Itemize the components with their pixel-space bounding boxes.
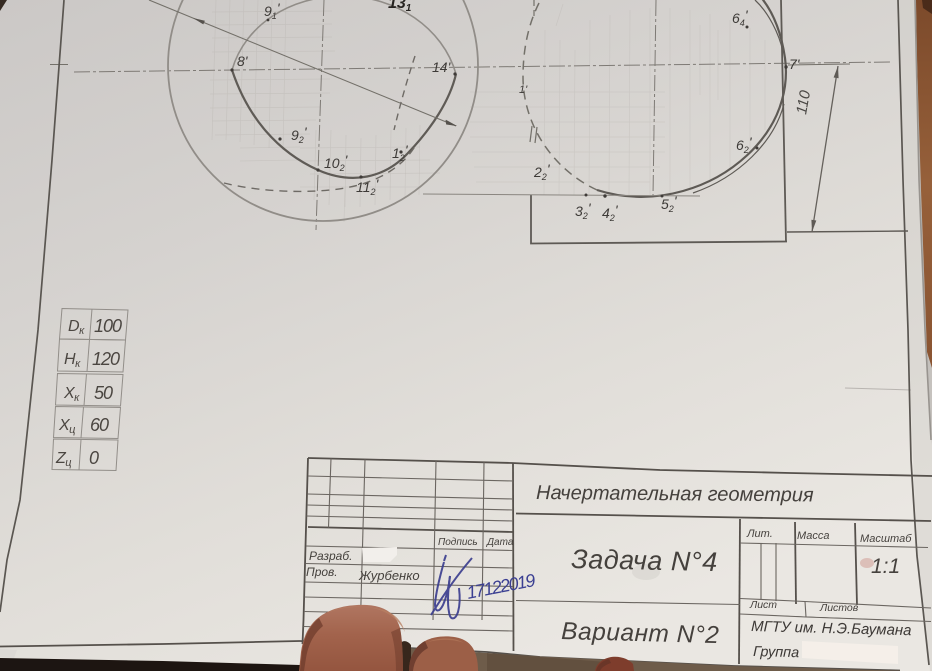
svg-text:Вариант N°2: Вариант N°2 [561, 618, 720, 649]
svg-text:1': 1' [519, 84, 528, 96]
svg-text:7': 7' [789, 56, 801, 72]
svg-text:Масштаб: Масштаб [860, 533, 912, 545]
svg-text:Группа: Группа [753, 644, 800, 661]
svg-text:Лист: Лист [749, 599, 777, 611]
svg-text:Журбенко: Журбенко [358, 568, 420, 583]
svg-text:60: 60 [90, 415, 109, 435]
svg-text:Лит.: Лит. [746, 528, 773, 540]
svg-text:8': 8' [237, 53, 249, 69]
svg-text:Разраб.: Разраб. [309, 549, 352, 563]
svg-text:50: 50 [94, 383, 113, 403]
svg-text:120: 120 [92, 349, 120, 369]
svg-text:Листов: Листов [819, 602, 859, 614]
svg-text:Масса: Масса [797, 530, 830, 542]
svg-text:1:1: 1:1 [871, 555, 900, 578]
svg-text:0: 0 [89, 448, 99, 468]
svg-text:Пров.: Пров. [306, 565, 338, 579]
svg-text:Подпись: Подпись [438, 537, 478, 548]
svg-text:Задача N°4: Задача N°4 [571, 544, 718, 577]
svg-text:14': 14' [432, 59, 452, 75]
svg-text:Начертательная геометрия: Начертательная геометрия [536, 482, 814, 506]
svg-text:100: 100 [94, 316, 122, 336]
svg-text:Дата: Дата [486, 537, 514, 548]
svg-text:131: 131 [388, 0, 412, 14]
